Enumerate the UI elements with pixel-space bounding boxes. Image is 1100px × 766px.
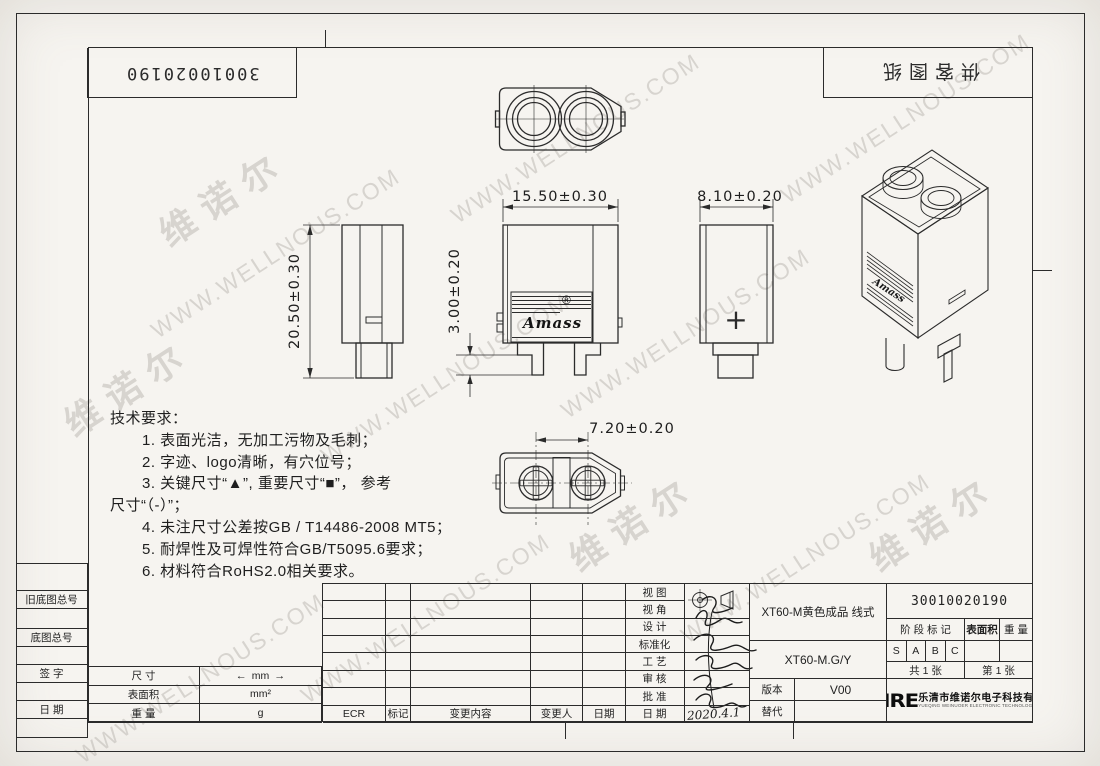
bottom-view bbox=[492, 432, 632, 525]
surface-area-unit: mm² bbox=[250, 688, 271, 700]
dim-pin-pitch bbox=[536, 437, 588, 442]
dim-label-body-depth: 8.10±0.20 bbox=[685, 189, 795, 205]
company-logo-box: WNRE 乐清市维诺尔电子科技有限公司 YUEQING WEINUOER ELE… bbox=[887, 679, 1033, 723]
dim-label-body-height: 20.50±0.30 bbox=[287, 241, 303, 361]
date-label: 日 期 bbox=[40, 702, 64, 717]
drawing-sheet: 维诺尔 WWW.WELLNOUS.COM 维诺尔 WWW.WELLNOUS.CO… bbox=[0, 0, 1100, 766]
dim-label-pin-pitch: 7.20±0.20 bbox=[562, 421, 702, 437]
dim-body-height bbox=[303, 225, 354, 378]
changed-by-header: 变更人 bbox=[541, 706, 573, 721]
angle-label: 视 角 bbox=[643, 602, 667, 617]
replace-value bbox=[795, 701, 887, 723]
handwritten-date: 2020.4.1 bbox=[687, 706, 741, 723]
registered-trademark-icon: ® bbox=[562, 293, 571, 307]
side-view bbox=[342, 225, 403, 378]
stage-mark-label: 阶 段 标 记 bbox=[900, 622, 951, 637]
process-label: 工 艺 bbox=[643, 654, 667, 669]
version-label: 版本 bbox=[762, 682, 783, 697]
size-label: 尺 寸 bbox=[132, 668, 156, 683]
surface-area-row-label: 表面积 bbox=[128, 687, 160, 702]
stage-c: C bbox=[951, 645, 959, 657]
stage-s: S bbox=[893, 645, 900, 657]
signature-column: 2020.4.1 bbox=[685, 583, 750, 722]
right-side-view bbox=[700, 225, 773, 378]
sheet-total: 共 1 张 bbox=[909, 663, 942, 678]
version-value: V00 bbox=[830, 683, 851, 697]
surface-area-value bbox=[965, 641, 1000, 662]
change-content-header: 变更内容 bbox=[450, 706, 492, 721]
dim-label-pin-length: 3.00±0.20 bbox=[447, 231, 463, 351]
date-row-label: 日 期 bbox=[643, 706, 667, 721]
amass-logo-front: Amass bbox=[513, 314, 592, 332]
amass-logo-isometric: Amass bbox=[870, 276, 907, 306]
base-no-label: 底图总号 bbox=[31, 630, 73, 645]
ecr-header: ECR bbox=[343, 708, 365, 720]
signature-label: 签 字 bbox=[40, 666, 64, 681]
right-arrow-icon: → bbox=[274, 670, 285, 682]
weight-label: 重 量 bbox=[1004, 622, 1028, 637]
top-view bbox=[496, 85, 626, 153]
dim-label-body-width: 15.50±0.30 bbox=[500, 189, 620, 205]
left-arrow-icon: ← bbox=[236, 670, 247, 682]
model-code: XT60-M.G/Y bbox=[785, 653, 852, 667]
left-register-column: 旧底图总号 底图总号 签 字 日 期 bbox=[16, 563, 88, 738]
weight-value bbox=[1000, 641, 1033, 662]
weight-unit: g bbox=[258, 707, 264, 719]
design-label: 设 计 bbox=[643, 619, 667, 634]
drawing-number: 30010020190 bbox=[911, 594, 1008, 609]
stage-b: B bbox=[932, 645, 939, 657]
units-table: 尺 寸 ← mm → 表面积 mm² 重 量 g bbox=[88, 666, 322, 722]
company-name-cn: 乐清市维诺尔电子科技有限公司 bbox=[918, 693, 1033, 704]
surface-area-label: 表面积 bbox=[966, 622, 998, 637]
standardization-label: 标准化 bbox=[639, 637, 671, 652]
replace-label: 替代 bbox=[762, 704, 783, 719]
product-id-block: XT60-M黄色成品 线式 30010020190 阶 段 标 记 表面积 重 … bbox=[750, 583, 1033, 722]
isometric-view: Amass bbox=[862, 150, 988, 382]
approve-label: 批 准 bbox=[643, 689, 667, 704]
change-date-header: 日期 bbox=[594, 706, 615, 721]
size-unit: mm bbox=[252, 670, 270, 682]
plus-polarity-mark: + bbox=[722, 306, 750, 334]
sheet-number: 第 1 张 bbox=[982, 663, 1015, 678]
company-logo-mark: WNRE bbox=[887, 690, 918, 712]
approval-labels-column: 视 图 视 角 设 计 标准化 工 艺 审 核 批 准 日 期 bbox=[625, 583, 685, 722]
revision-table: ECR 标记 变更内容 变更人 日期 bbox=[322, 583, 625, 722]
view-label: 视 图 bbox=[643, 585, 667, 600]
stage-a: A bbox=[912, 645, 919, 657]
weight-row-label: 重 量 bbox=[132, 706, 156, 721]
review-label: 审 核 bbox=[643, 671, 667, 686]
old-base-no-label: 旧底图总号 bbox=[25, 592, 78, 607]
front-view bbox=[497, 225, 622, 375]
product-name: XT60-M黄色成品 线式 bbox=[761, 604, 874, 620]
mark-header: 标记 bbox=[388, 706, 409, 721]
company-name-en: YUEQING WEINUOER ELECTRONIC TECHNOLOGY C… bbox=[918, 704, 1033, 709]
